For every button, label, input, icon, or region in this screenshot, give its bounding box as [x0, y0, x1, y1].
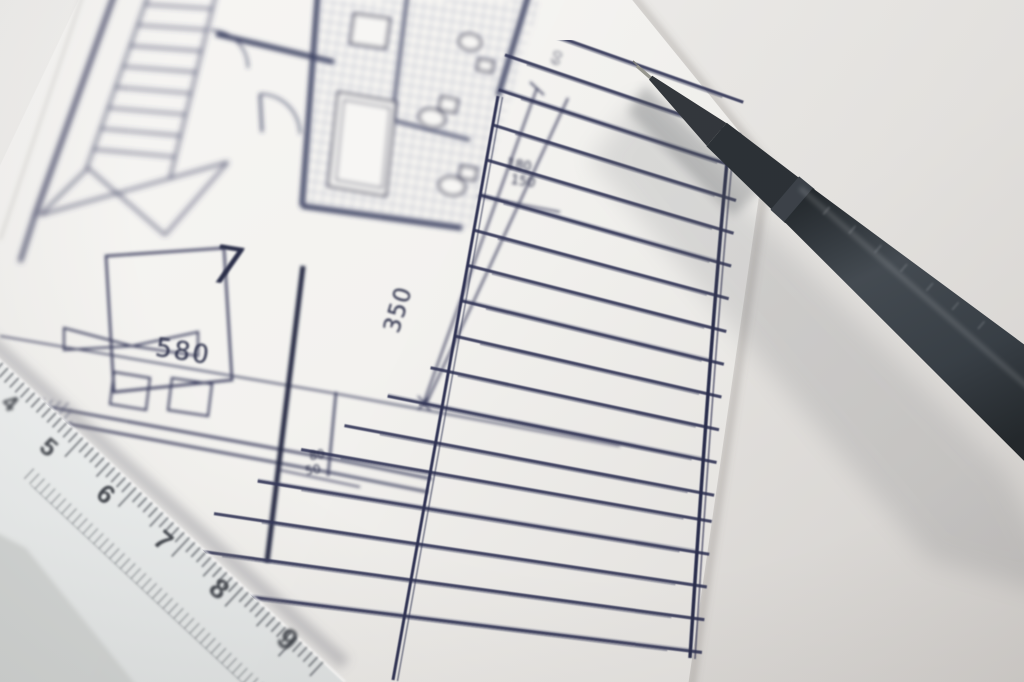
- photo-architectural-blueprint: 7580350180150608050: [0, 0, 1024, 682]
- tools-layer: [0, 0, 1024, 682]
